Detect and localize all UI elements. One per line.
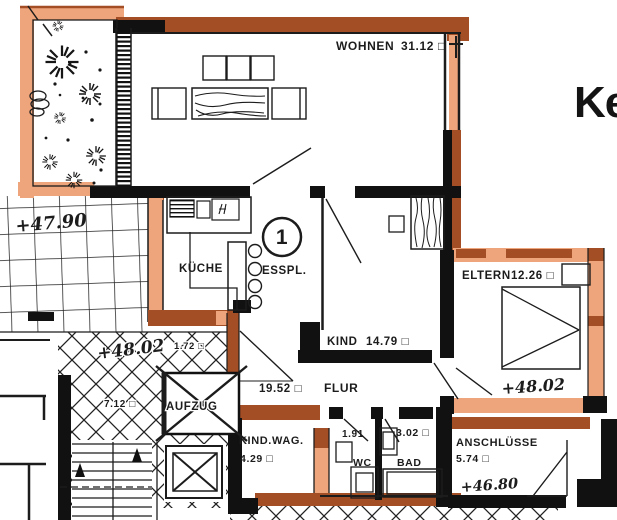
label-niche-area: 1.72 □	[174, 341, 204, 352]
label-kind-area: 14.79 □	[366, 336, 409, 348]
floor-plan-drawing: 1 WOHNEN 31.12 □ KÜCHE ESSPL. ELTERN 12.…	[0, 0, 617, 520]
label-kindwag-area: 4.29 □	[240, 453, 273, 465]
label-bad: BAD	[397, 457, 422, 469]
label-esspl: ESSPL.	[262, 265, 307, 277]
label-wc-area: 1.91	[342, 429, 364, 440]
label-bad-area: 3.02 □	[396, 427, 429, 439]
label-flur-area: 19.52 □	[259, 383, 302, 395]
label-eltern-area: 12.26 □	[511, 270, 554, 282]
label-flur: FLUR	[324, 381, 358, 395]
kitchen-sink	[170, 200, 194, 217]
label-landing-area: 7.12 □	[104, 399, 136, 410]
floor-plan-page: 1 WOHNEN 31.12 □ KÜCHE ESSPL. ELTERN 12.…	[0, 0, 617, 520]
label-eltern: ELTERN	[462, 270, 511, 282]
glazing-band	[116, 28, 131, 186]
staircase	[60, 440, 152, 520]
label-kindwag: KIND.WAG.	[239, 435, 304, 447]
label-anschluesse: ANSCHLÜSSE	[456, 436, 538, 449]
label-kueche: KÜCHE	[179, 262, 223, 275]
label-kind: KIND	[327, 336, 358, 348]
label-anschluesse-area: 5.74 □	[456, 453, 489, 465]
label-wc: WC	[353, 457, 372, 469]
label-wohnen-area: 31.12 □	[401, 39, 446, 53]
edge-text-partial: Ke	[574, 78, 617, 127]
label-wohnen: WOHNEN	[336, 39, 394, 53]
label-aufzug: AUFZUG	[166, 401, 218, 413]
unit-number-text: 1	[276, 226, 288, 249]
